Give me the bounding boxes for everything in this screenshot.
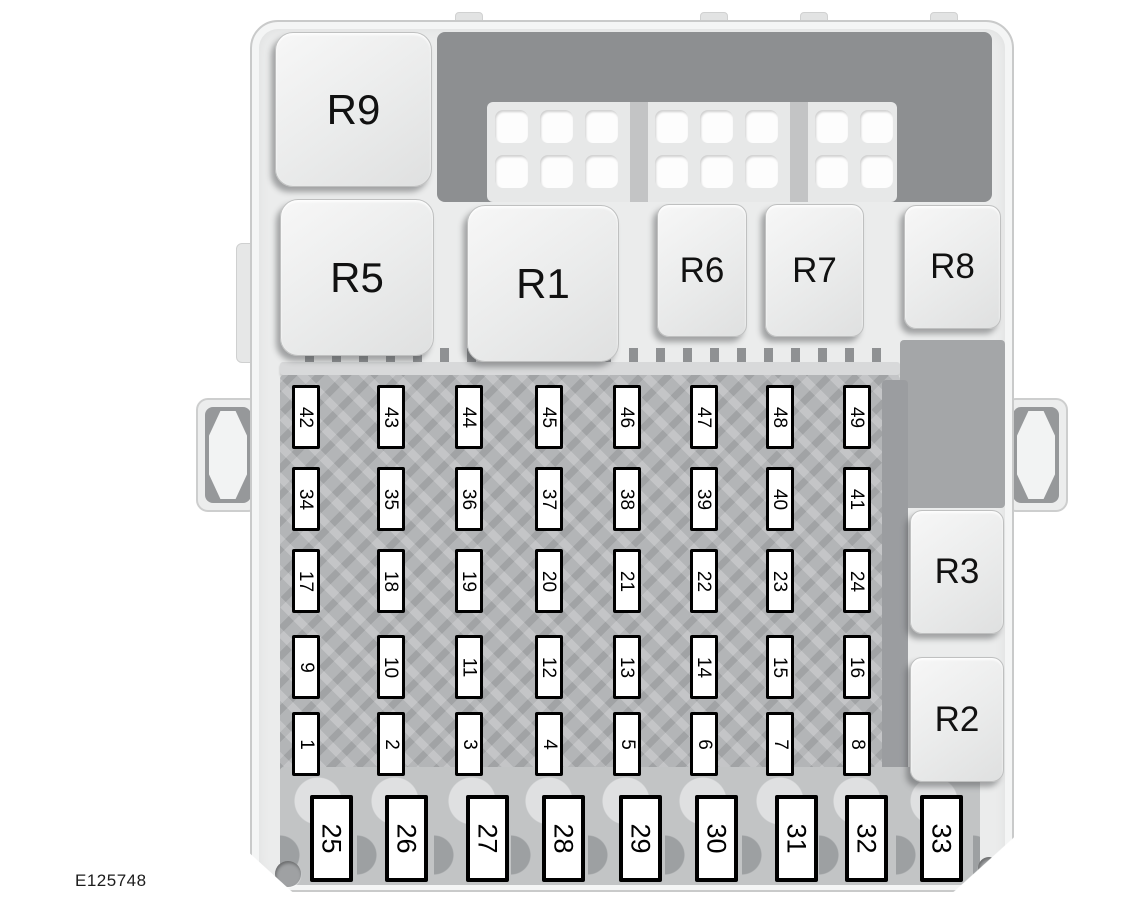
fuse-37: 37 xyxy=(535,467,563,531)
fuse-number: 40 xyxy=(770,488,789,509)
fuse-number: 26 xyxy=(393,823,420,853)
fuse-number: 3 xyxy=(459,739,478,750)
right-tab-octagon xyxy=(1017,411,1055,499)
fuse-number: 25 xyxy=(318,823,345,853)
bottom-left-chamfer xyxy=(249,853,293,893)
left-tab-octagon xyxy=(209,411,247,499)
fuse-29: 29 xyxy=(619,795,662,882)
fuse-25: 25 xyxy=(310,795,353,882)
right-cavity-panel xyxy=(900,340,1005,508)
relay-label: R2 xyxy=(935,700,980,740)
socket-hole xyxy=(745,110,778,143)
relay-label: R7 xyxy=(792,251,837,291)
socket-divider xyxy=(790,102,808,202)
relay-label: R5 xyxy=(330,254,384,302)
fuse-number: 34 xyxy=(296,488,315,509)
fuse-3: 3 xyxy=(455,712,483,776)
relay-R9: R9 xyxy=(275,32,432,187)
socket-hole xyxy=(815,110,848,143)
fuse-4: 4 xyxy=(535,712,563,776)
fuse-number: 33 xyxy=(928,823,955,853)
fuse-19: 19 xyxy=(455,549,483,613)
fuse-32: 32 xyxy=(845,795,888,882)
relay-socket-grid xyxy=(487,102,897,202)
fuse-2: 2 xyxy=(377,712,405,776)
fuse-43: 43 xyxy=(377,385,405,449)
fuse-number: 8 xyxy=(847,739,866,750)
fuse-21: 21 xyxy=(613,549,641,613)
relay-R6: R6 xyxy=(657,204,747,337)
fuse-number: 47 xyxy=(694,406,713,427)
fuse-number: 36 xyxy=(459,488,478,509)
fuse-number: 43 xyxy=(381,406,400,427)
fuse-11: 11 xyxy=(455,635,483,699)
fuse-number: 41 xyxy=(847,488,866,509)
socket-hole xyxy=(655,155,688,188)
fuse-number: 38 xyxy=(617,488,636,509)
fuse-number: 17 xyxy=(296,570,315,591)
socket-hole xyxy=(585,110,618,143)
relay-R2: R2 xyxy=(910,657,1004,782)
fuse-number: 24 xyxy=(847,570,866,591)
fuse-number: 4 xyxy=(539,739,558,750)
socket-hole xyxy=(745,155,778,188)
fuse-number: 31 xyxy=(783,823,810,853)
fuse-30: 30 xyxy=(695,795,738,882)
relay-R1: R1 xyxy=(467,205,619,362)
fuse-number: 46 xyxy=(617,406,636,427)
fuse-40: 40 xyxy=(766,467,794,531)
fuse-number: 16 xyxy=(847,656,866,677)
fuse-13: 13 xyxy=(613,635,641,699)
fuse-1: 1 xyxy=(292,712,320,776)
relay-R5: R5 xyxy=(280,199,434,356)
fuse-31: 31 xyxy=(775,795,818,882)
fuse-47: 47 xyxy=(690,385,718,449)
fuse-7: 7 xyxy=(766,712,794,776)
fuse-number: 2 xyxy=(381,739,400,750)
socket-hole xyxy=(585,155,618,188)
relay-label: R1 xyxy=(516,260,570,308)
socket-hole xyxy=(860,110,893,143)
fuse-box-diagram: R9 R5 R1 R6 R7 R8 R3 R2 4243444546474849… xyxy=(0,0,1121,917)
fuse-39: 39 xyxy=(690,467,718,531)
fuse-number: 48 xyxy=(770,406,789,427)
fuse-number: 22 xyxy=(694,570,713,591)
fuse-number: 15 xyxy=(770,656,789,677)
fuse-41: 41 xyxy=(843,467,871,531)
fuse-number: 11 xyxy=(459,657,478,677)
fuse-number: 14 xyxy=(694,656,713,677)
fuse-number: 29 xyxy=(627,823,654,853)
fuse-34: 34 xyxy=(292,467,320,531)
fuse-38: 38 xyxy=(613,467,641,531)
relay-label: R8 xyxy=(930,247,975,287)
fuse-6: 6 xyxy=(690,712,718,776)
socket-hole xyxy=(495,110,528,143)
socket-hole xyxy=(815,155,848,188)
fuse-20: 20 xyxy=(535,549,563,613)
figure-code: E125748 xyxy=(75,871,147,891)
fuse-number: 37 xyxy=(539,488,558,509)
fuse-44: 44 xyxy=(455,385,483,449)
fuse-48: 48 xyxy=(766,385,794,449)
fuse-10: 10 xyxy=(377,635,405,699)
fuse-46: 46 xyxy=(613,385,641,449)
relay-R3: R3 xyxy=(910,510,1004,634)
fuse-number: 30 xyxy=(703,823,730,853)
relay-label: R6 xyxy=(680,251,725,291)
fuse-28: 28 xyxy=(542,795,585,882)
socket-hole xyxy=(700,155,733,188)
fuse-number: 20 xyxy=(539,570,558,591)
fuse-number: 7 xyxy=(770,739,789,750)
fuse-number: 49 xyxy=(847,406,866,427)
relay-R8: R8 xyxy=(904,205,1001,329)
fuse-35: 35 xyxy=(377,467,405,531)
fuse-number: 21 xyxy=(617,570,636,591)
fuse-number: 10 xyxy=(381,656,400,677)
fuse-number: 28 xyxy=(550,823,577,853)
fuse-8: 8 xyxy=(843,712,871,776)
fuse-number: 12 xyxy=(539,656,558,677)
fuse-number: 23 xyxy=(770,570,789,591)
fuse-26: 26 xyxy=(385,795,428,882)
fuse-number: 1 xyxy=(296,739,315,750)
fuse-49: 49 xyxy=(843,385,871,449)
fuse-number: 39 xyxy=(694,488,713,509)
fuse-18: 18 xyxy=(377,549,405,613)
fuse-number: 42 xyxy=(296,406,315,427)
fuse-shelf-bar xyxy=(280,362,900,375)
fuse-12: 12 xyxy=(535,635,563,699)
fuse-number: 32 xyxy=(853,823,880,853)
bottom-right-chamfer xyxy=(953,837,1015,893)
fuse-number: 35 xyxy=(381,488,400,509)
socket-hole xyxy=(700,110,733,143)
fuse-42: 42 xyxy=(292,385,320,449)
fuse-14: 14 xyxy=(690,635,718,699)
fuse-panel-texture xyxy=(280,375,900,794)
relay-label: R3 xyxy=(935,552,980,592)
relay-label: R9 xyxy=(327,86,381,134)
fuse-number: 6 xyxy=(694,739,713,750)
fuse-15: 15 xyxy=(766,635,794,699)
fuse-number: 44 xyxy=(459,406,478,427)
socket-hole xyxy=(540,155,573,188)
socket-hole xyxy=(860,155,893,188)
fuse-23: 23 xyxy=(766,549,794,613)
fuse-45: 45 xyxy=(535,385,563,449)
fuse-number: 5 xyxy=(617,739,636,750)
fuse-36: 36 xyxy=(455,467,483,531)
fuse-22: 22 xyxy=(690,549,718,613)
fuse-number: 27 xyxy=(474,823,501,853)
fuse-9: 9 xyxy=(292,635,320,699)
socket-hole xyxy=(540,110,573,143)
fuse-number: 13 xyxy=(617,656,636,677)
right-divider-wall xyxy=(882,380,908,792)
fuse-27: 27 xyxy=(466,795,509,882)
fuse-number: 19 xyxy=(459,570,478,591)
fuse-16: 16 xyxy=(843,635,871,699)
fuse-number: 18 xyxy=(381,570,400,591)
socket-hole xyxy=(495,155,528,188)
socket-hole xyxy=(655,110,688,143)
fuse-24: 24 xyxy=(843,549,871,613)
fuse-number: 45 xyxy=(539,406,558,427)
fuse-5: 5 xyxy=(613,712,641,776)
fuse-number: 9 xyxy=(296,662,315,673)
relay-R7: R7 xyxy=(765,204,864,337)
socket-divider xyxy=(630,102,648,202)
fuse-17: 17 xyxy=(292,549,320,613)
fuse-box-body: R9 R5 R1 R6 R7 R8 R3 R2 4243444546474849… xyxy=(250,20,1014,892)
